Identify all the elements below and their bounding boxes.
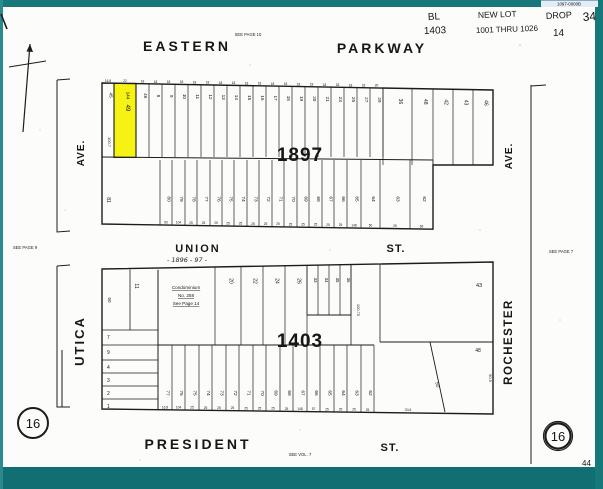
lot-dimension: 25 <box>325 407 329 411</box>
lot-dimension: 104 <box>176 405 182 409</box>
lot-dimension: 25 <box>276 222 280 226</box>
lot-number: 11 <box>195 94 200 99</box>
lot-number: 16 <box>260 95 265 101</box>
lot-number: 72 <box>232 390 238 396</box>
lot-dimension: 18 <box>193 80 197 84</box>
bl-value: 1403 <box>424 25 447 37</box>
see-vol-bottom: SEE VOL. 7 <box>289 452 312 457</box>
lot-dimension: 25 <box>366 408 370 412</box>
right-margin-line <box>531 85 546 464</box>
lot-dimension: 25 <box>226 221 230 225</box>
street-utica: UTICA <box>72 316 87 366</box>
lot-dimension: 18 <box>154 80 158 84</box>
lot-number: 67 <box>300 390 306 396</box>
new-lot-value: 1001 THRU 1026 <box>476 24 539 35</box>
lot-number: 10 <box>182 94 187 100</box>
lot-number: 66 <box>340 196 346 202</box>
lot-dimension: 25 <box>285 407 289 411</box>
lot-dimension: 25 <box>271 407 275 411</box>
see-page-right: SEE PAGE 7 <box>549 249 574 254</box>
lot-dimension: 25 <box>352 408 356 412</box>
see-page-top: SEE PAGE 10 <box>235 32 262 37</box>
lot-dividers-union: 8079787776757473727170696867666564636250… <box>160 160 433 229</box>
lot-number: 71 <box>278 196 284 202</box>
corner-lot-dim: 90.5 <box>488 374 493 383</box>
sheet-note: 34 <box>582 9 597 24</box>
lot-number: 9 <box>169 95 174 98</box>
lot-number: 29 <box>377 97 382 103</box>
lot-number: 23 <box>338 97 343 103</box>
lot-number: 63 <box>395 196 401 202</box>
lot-dimension: 25 <box>204 406 208 410</box>
left-lot-dim: 50 <box>107 297 112 303</box>
street-ave-right: AVE. <box>504 143 515 170</box>
lot-number: 8 <box>156 95 161 98</box>
page-circle-left-number: 16 <box>26 416 40 431</box>
condo-note-line2: No. 258 <box>178 293 195 298</box>
lot-number: 46 <box>483 100 489 106</box>
lot-dimension: 25 <box>264 222 268 226</box>
lot-dimension: 18 <box>336 83 340 87</box>
block-1403: 20222426 33343536 7776757473727170696867… <box>102 262 493 414</box>
lot-dimension: 16.8 <box>162 405 168 409</box>
lot-number: 72 <box>265 196 271 202</box>
lot-number: 3 <box>107 378 110 384</box>
lot-number: 33 <box>313 278 318 283</box>
lot-number: 78 <box>191 196 197 202</box>
lot-dimension: 18 <box>362 84 366 88</box>
condo-note-line1: Condominium <box>172 285 201 290</box>
lot-dimension: 25 <box>231 406 235 410</box>
lot-dimension: 18 <box>180 80 184 84</box>
lot-number: 36 <box>397 99 403 105</box>
drop-value: 14 <box>553 28 565 39</box>
lot-number: 62 <box>367 390 373 396</box>
lot-number: 68 <box>286 390 292 396</box>
lot-number: 36 <box>346 278 351 283</box>
lot-dimension: 18 <box>141 80 145 84</box>
lot-number: 74 <box>240 196 246 202</box>
lot-number: 63 <box>354 390 360 396</box>
left-bracket-upper <box>57 79 70 232</box>
street-eastern: EASTERN <box>143 38 231 54</box>
lot-number: 73 <box>219 390 225 396</box>
lot-number: 14 <box>234 95 239 101</box>
lot-number: 65 <box>354 196 360 202</box>
street-parkway: PARKWAY <box>337 40 427 56</box>
condo-note-line3: See Page 14 <box>173 301 200 306</box>
lot-number: 42 <box>443 99 449 105</box>
lot-dimension: 18 <box>323 83 327 87</box>
lot-number: 48 <box>422 99 428 105</box>
lot-number: 24 <box>274 278 280 284</box>
block-1897-number: 1897 <box>277 145 323 166</box>
lot-dimension: 25 <box>239 222 243 226</box>
block-1897: 4514446891011121314151617181920212325272… <box>102 79 493 229</box>
lot-dimension: 18 <box>245 81 249 85</box>
lot-number: 20 <box>228 278 234 284</box>
condo-note: Condominium No. 258 See Page 14 <box>172 285 201 306</box>
lot-number: 77 <box>165 390 171 396</box>
lot-dimension: 18 <box>232 81 236 85</box>
lot-dimension: 57 <box>312 407 316 411</box>
lot-dimension: 18 <box>271 82 275 86</box>
lot-dimension: 16.8 <box>105 79 111 83</box>
tax-map-page: 1097-0000B BL 1403 NEW LOT 1001 THRU 102… <box>0 0 603 489</box>
lot-dimension: 50 <box>164 220 168 224</box>
lot-number: 35 <box>335 278 340 283</box>
highlighted-lot <box>114 83 136 157</box>
lot-number: 25 <box>351 97 356 103</box>
lot-number: 4 <box>107 365 110 371</box>
lot-dimension: 25 <box>326 223 330 227</box>
lot-number: 77 <box>203 196 209 202</box>
lot-number: 7 <box>107 335 110 341</box>
lot-dimension: 25 <box>190 406 194 410</box>
lot-number: 67 <box>328 196 334 202</box>
lot-dimension: 25 <box>251 222 255 226</box>
street-ave-left: AVE. <box>76 140 87 167</box>
big-lot-number: 43 <box>476 283 482 289</box>
lot-number: 26 <box>296 278 302 284</box>
scan-frame: 1097-0000B <box>0 0 603 489</box>
lot-number: 74 <box>205 390 211 396</box>
lot-number: 62 <box>421 196 427 202</box>
lot-dimension: 20 <box>375 84 379 88</box>
lot-dimension: 18 <box>284 82 288 86</box>
highlight-lot-number: 49 <box>124 105 130 112</box>
lot-number: 64 <box>340 390 346 396</box>
street-president-st: ST. <box>381 442 400 454</box>
left-bracket-lower <box>57 265 70 407</box>
frame-bottom <box>0 467 603 489</box>
lot-number: 65 <box>327 390 333 396</box>
lot-dimension: 148 <box>351 223 357 227</box>
lot-dimension: 25 <box>258 407 262 411</box>
north-arrow <box>1 14 46 132</box>
lot-dimension: 18 <box>167 80 171 84</box>
lot-number: 66 <box>313 390 319 396</box>
lot-number: 144 <box>126 92 131 100</box>
mid-dim: 100.75 <box>356 304 361 317</box>
lot-dimension: 25 <box>339 223 343 227</box>
lot-dimension: 18 <box>206 81 210 85</box>
handwritten-header: BL 1403 NEW LOT 1001 THRU 1026 DROP 14 3… <box>424 9 597 468</box>
street-rochester: ROCHESTER <box>503 299 515 385</box>
lot-dividers-small-1403: 33343536 <box>307 265 351 315</box>
lot-dimension: 25 <box>314 223 318 227</box>
corner-lot-number: 48 <box>475 348 481 354</box>
left-lot-number: 11 <box>133 283 139 288</box>
lot-dimension: 148 <box>297 407 303 411</box>
lot-number: 76 <box>178 390 184 396</box>
lot-dimension: 69 <box>420 224 424 228</box>
new-lot-label: NEW LOT <box>478 9 517 20</box>
lot-number: 17 <box>273 96 278 102</box>
lot-dimension: 25 <box>289 222 293 226</box>
lot-number: 13 <box>221 95 226 101</box>
lot-dimension: 25 <box>339 408 343 412</box>
lot-number: 20 <box>312 96 317 102</box>
page-circle-right-number: 16 <box>551 429 565 444</box>
lot-dimension: 50 <box>369 224 373 228</box>
lot-number: 69 <box>273 390 279 396</box>
lot-dimension: 18 <box>258 82 262 86</box>
lot-dimension: 25 <box>202 221 206 225</box>
dim-left-1897: 100.7 <box>107 137 112 148</box>
tax-map-scan: 1097-0000B BL 1403 NEW LOT 1001 THRU 102… <box>0 0 603 489</box>
lot-dimension: 22 <box>123 79 127 83</box>
lot-number: 76 <box>216 196 222 202</box>
street-union: UNION <box>175 243 220 255</box>
union-years-note: - 1896 - 97 - <box>167 256 208 264</box>
lot-number: 75 <box>192 390 198 396</box>
lot-number: 18 <box>286 96 291 102</box>
lot-number: 80 <box>166 196 172 202</box>
watermark-text: 1097-0000B <box>557 2 581 7</box>
lot-number: 1 <box>107 404 110 410</box>
lot-number: 45 <box>109 93 114 99</box>
lot-dividers-parkway: 4514446891011121314151617181920212325272… <box>102 79 383 157</box>
lot-number: 70 <box>290 196 296 202</box>
lot-dimension: 25 <box>244 406 248 410</box>
lot-dimension: 18 <box>219 81 223 85</box>
street-union-st: ST. <box>387 243 406 255</box>
lot-dimension: 18 <box>349 83 353 87</box>
block-1403-number: 1403 <box>277 331 323 352</box>
lot-number: 9 <box>107 350 110 356</box>
lot-number: 46 <box>143 93 148 99</box>
lot-number: 79 <box>178 196 184 202</box>
lot-number: 12 <box>208 94 213 100</box>
street-president: PRESIDENT <box>144 436 251 452</box>
lot-number: 2 <box>107 391 110 397</box>
lot-dimension: 18 <box>297 82 301 86</box>
lot-number: 71 <box>246 390 252 396</box>
lot-number: 15 <box>247 95 252 101</box>
lot-number: 70 <box>259 390 265 396</box>
lot-dimension: 104 <box>176 221 182 225</box>
lot-number: 21 <box>325 96 330 102</box>
union-left-lot-number: 81 <box>105 197 111 203</box>
frame-left <box>0 0 3 489</box>
lot-dimension: 25 <box>217 406 221 410</box>
see-page-left: SEE PAGE 9 <box>13 245 38 250</box>
lot-dimension: 18 <box>310 83 314 87</box>
drop-label: DROP <box>546 10 573 21</box>
bottom-dim: 314 <box>405 407 412 412</box>
lot-dividers-right: 3648424346 <box>383 88 493 165</box>
lot-number: 19 <box>299 96 304 102</box>
lot-number: 27 <box>364 97 369 103</box>
page-number: 44 <box>582 459 591 468</box>
lot-number: 34 <box>324 278 329 283</box>
lot-number: 69 <box>303 196 309 202</box>
bl-label: BL <box>428 11 441 23</box>
lot-dimension: 25 <box>393 224 397 228</box>
lot-number: 68 <box>315 196 321 202</box>
lot-dimension: 25 <box>301 223 305 227</box>
frame-top <box>0 0 603 7</box>
lot-number: 75 <box>228 196 234 202</box>
frame-right <box>595 0 603 489</box>
lot-number: 73 <box>253 196 259 202</box>
lot-dimension: 25 <box>189 221 193 225</box>
lot-number: 43 <box>463 100 469 106</box>
lot-dividers-president: 7776757473727170696867666564636216.81042… <box>158 345 374 412</box>
lot-dimension: 25 <box>214 221 218 225</box>
lot-number: 64 <box>370 196 376 202</box>
lot-number: 22 <box>252 278 258 284</box>
